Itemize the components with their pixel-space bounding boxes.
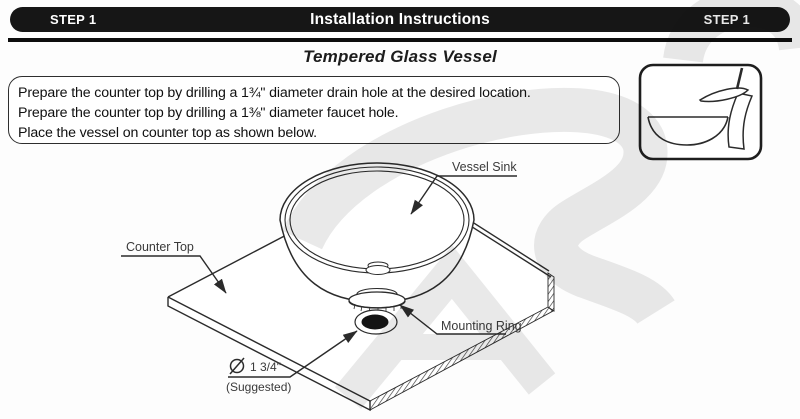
vessel-faucet-thumbnail bbox=[638, 63, 763, 161]
instruction-line-3: Place the vessel on counter top as shown… bbox=[18, 123, 610, 143]
counter-top-label: Counter Top bbox=[126, 240, 194, 254]
installation-diagram: Vessel Sink Counter Top Mounting Ring 1 … bbox=[0, 150, 800, 419]
vessel-sink-label: Vessel Sink bbox=[452, 160, 517, 174]
instruction-box: Prepare the counter top by drilling a 1¾… bbox=[8, 76, 620, 144]
instruction-line-2: Prepare the counter top by drilling a 1⅜… bbox=[18, 103, 610, 123]
header-bar: STEP 1 Installation Instructions STEP 1 bbox=[10, 7, 790, 32]
header-divider bbox=[8, 38, 792, 42]
mounting-ring-label: Mounting Ring bbox=[441, 319, 522, 333]
vessel-faucet-icon bbox=[638, 63, 763, 161]
drain-hole-drawing bbox=[355, 310, 397, 334]
diameter-icon bbox=[230, 358, 244, 374]
instruction-line-1: Prepare the counter top by drilling a 1¾… bbox=[18, 83, 610, 103]
page-title: Installation Instructions bbox=[10, 11, 790, 29]
drain-diameter-label: 1 3/4" bbox=[250, 360, 281, 374]
drain-suggested-label: (Suggested) bbox=[226, 380, 291, 394]
